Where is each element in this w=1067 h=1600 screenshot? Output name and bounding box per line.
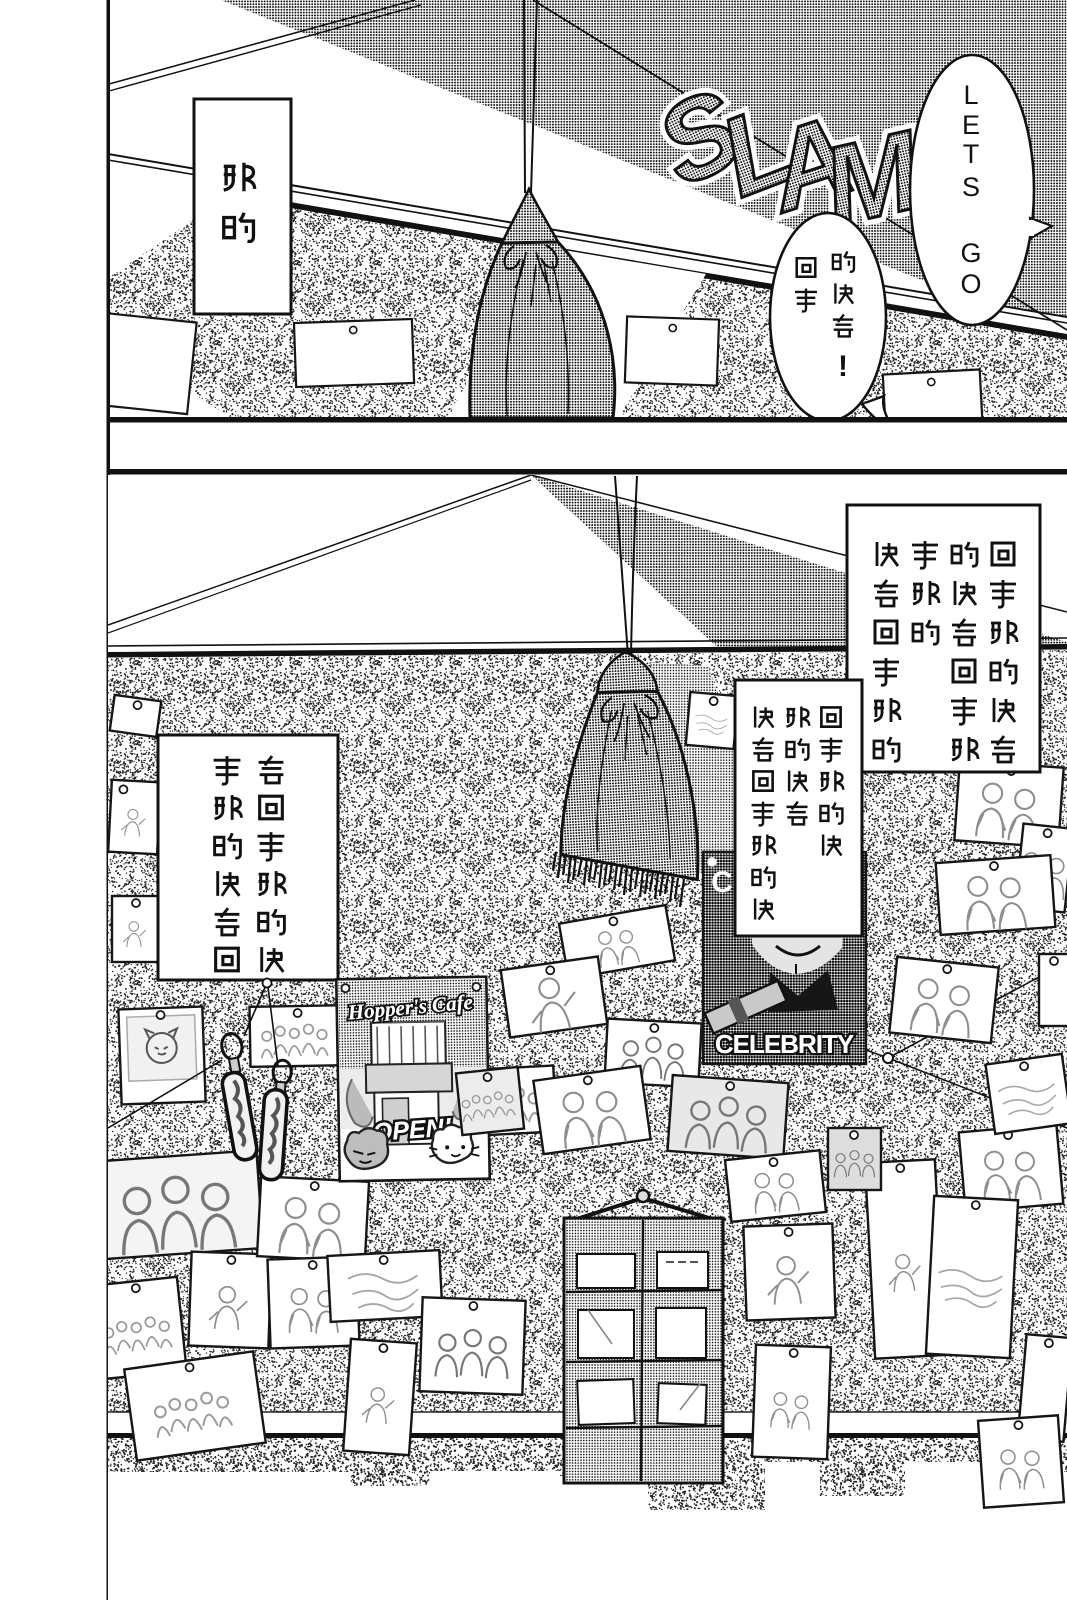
svg-text:L: L (963, 80, 978, 110)
svg-text:CELEBRITY: CELEBRITY (715, 1029, 854, 1059)
svg-text:T: T (963, 139, 980, 169)
svg-text:!: ! (838, 350, 848, 383)
svg-text:G: G (960, 238, 981, 268)
svg-text:E: E (962, 110, 980, 140)
svg-text:O: O (960, 269, 981, 299)
svg-text:C: C (711, 866, 733, 899)
svg-text:S: S (962, 172, 980, 202)
